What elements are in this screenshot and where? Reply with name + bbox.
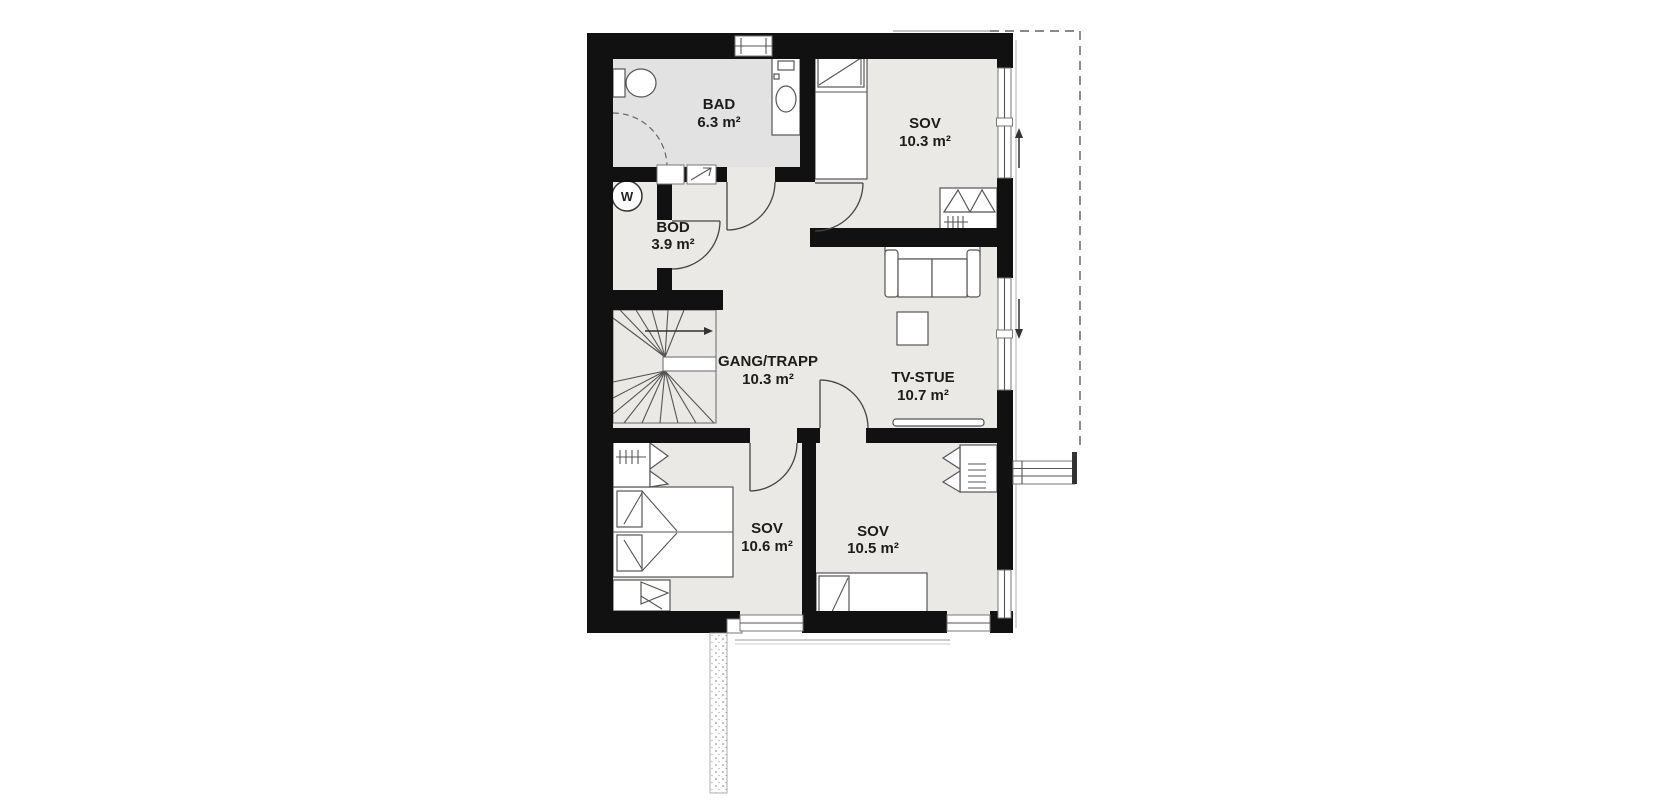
floorplan-drawing: W — [0, 0, 1670, 800]
room-label-bod: BOD 3.9 m² — [651, 219, 694, 253]
wall-right — [997, 50, 1013, 68]
wardrobe-icon — [940, 188, 997, 235]
wall-hatch — [657, 165, 684, 184]
room-area: 10.3 m² — [899, 133, 951, 150]
wall-left — [587, 33, 613, 633]
wall-right — [997, 178, 1013, 278]
room-name: GANG/TRAPP — [718, 353, 818, 370]
tv-bench-icon — [893, 419, 984, 426]
wall-middle — [613, 428, 750, 443]
wall-bottom — [803, 611, 947, 633]
room-name: TV-STUE — [891, 369, 954, 386]
room-name: BOD — [656, 219, 690, 236]
exterior-stair-icon — [1013, 452, 1077, 484]
wall-partition — [800, 33, 815, 182]
wall-storage — [657, 182, 672, 220]
room-area: 10.6 m² — [741, 538, 793, 555]
room-label-tvstue: TV-STUE 10.7 m² — [891, 369, 954, 404]
water-heater-label: W — [621, 189, 634, 204]
sink-icon — [772, 58, 800, 135]
room-name: SOV — [909, 115, 941, 132]
exterior-wall-strip — [710, 633, 727, 793]
room-label-bad: BAD 6.3 m² — [697, 96, 740, 131]
vent-icon — [687, 165, 716, 184]
sofa-icon — [885, 245, 980, 297]
room-name: BAD — [703, 96, 736, 113]
bed-icon — [815, 53, 867, 179]
wall-middle — [866, 428, 1013, 443]
wall-bedroom — [810, 228, 997, 247]
water-heater-icon: W — [612, 181, 642, 211]
room-area: 6.3 m² — [697, 114, 740, 131]
room-area: 10.3 m² — [742, 371, 794, 388]
coffee-table-icon — [897, 312, 928, 345]
wall-partition — [802, 428, 816, 633]
toilet-icon — [613, 69, 656, 97]
staircase-icon — [613, 310, 716, 423]
wall-right — [997, 390, 1013, 570]
room-area: 10.7 m² — [897, 387, 949, 404]
floorplan-canvas: W — [0, 0, 1670, 800]
wall-storage — [613, 290, 723, 310]
room-area: 3.9 m² — [651, 236, 694, 253]
room-name: SOV — [751, 520, 783, 537]
wall-bottom — [587, 611, 740, 633]
room-area: 10.5 m² — [847, 540, 899, 557]
room-name: SOV — [857, 523, 889, 540]
double-bed-icon — [613, 487, 733, 577]
wall-right — [997, 616, 1013, 633]
closet-icon — [613, 580, 670, 611]
